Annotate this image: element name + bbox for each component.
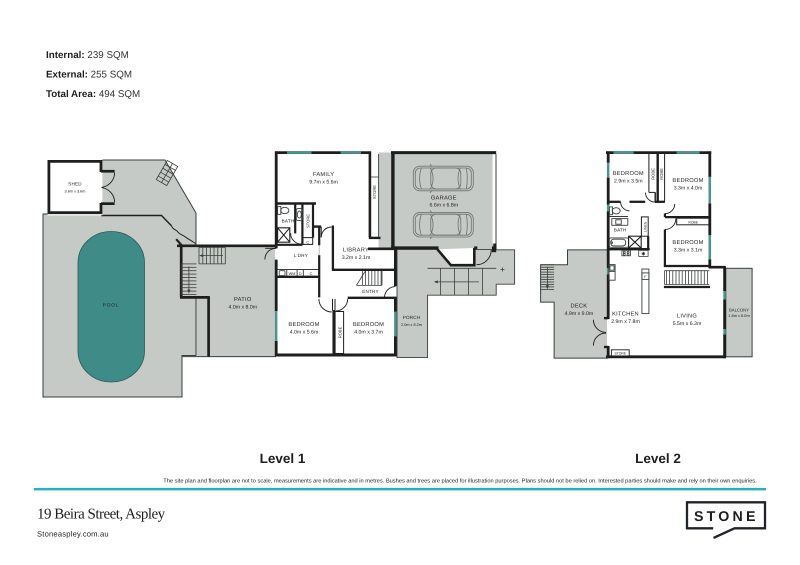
svg-text:1.8m x 8.0m: 1.8m x 8.0m xyxy=(728,313,749,318)
svg-text:6.6m x 6.8m: 6.6m x 6.8m xyxy=(430,203,459,209)
svg-text:LINEN: LINEN xyxy=(643,221,647,232)
svg-text:ROBE: ROBE xyxy=(651,168,656,180)
svg-text:Level 2: Level 2 xyxy=(635,451,681,466)
svg-text:PORCH: PORCH xyxy=(403,315,421,320)
svg-text:LIVING: LIVING xyxy=(677,314,697,320)
svg-text:Stoneaspley.com.au: Stoneaspley.com.au xyxy=(37,530,109,539)
svg-text:BATH: BATH xyxy=(614,228,627,233)
svg-text:4.0m x 5.6m: 4.0m x 5.6m xyxy=(290,330,319,336)
svg-text:PATIO: PATIO xyxy=(234,297,252,303)
svg-text:DECK: DECK xyxy=(570,304,587,310)
svg-text:L’DRY: L’DRY xyxy=(294,253,308,258)
svg-text:9.7m x 5.6m: 9.7m x 5.6m xyxy=(309,179,338,185)
svg-text:2.0m x 8.2m: 2.0m x 8.2m xyxy=(401,323,422,327)
svg-text:The site plan and floorplan ar: The site plan and floorplan are not to s… xyxy=(163,478,757,485)
svg-text:ROBE: ROBE xyxy=(688,220,698,224)
svg-text:Total Area: 494 SQM: Total Area: 494 SQM xyxy=(46,89,140,100)
svg-text:KITCHEN: KITCHEN xyxy=(612,312,639,318)
svg-text:ENTRY: ENTRY xyxy=(362,289,379,294)
svg-text:4.0m x 3.7m: 4.0m x 3.7m xyxy=(354,330,383,336)
svg-text:Internal: 239 SQM: Internal: 239 SQM xyxy=(46,50,129,61)
svg-text:WM: WM xyxy=(289,272,296,276)
svg-text:BEDROOM: BEDROOM xyxy=(672,240,703,246)
svg-text:SHED: SHED xyxy=(68,182,82,187)
svg-text:BATH: BATH xyxy=(282,219,295,224)
svg-text:4.0m x 8.0m: 4.0m x 8.0m xyxy=(229,305,258,311)
svg-text:D: D xyxy=(299,272,302,276)
svg-text:2.9m x 7.8m: 2.9m x 7.8m xyxy=(611,319,640,325)
svg-text:POOL: POOL xyxy=(103,303,120,309)
svg-text:External: 255 SQM: External: 255 SQM xyxy=(46,70,132,81)
svg-text:✱: ✱ xyxy=(641,251,645,257)
svg-text:Level 1: Level 1 xyxy=(260,451,306,466)
svg-text:C: C xyxy=(310,272,313,276)
svg-text:3.6m x 3.6m: 3.6m x 3.6m xyxy=(65,190,86,194)
svg-text:BALCONY: BALCONY xyxy=(729,308,749,313)
svg-text:STORE: STORE xyxy=(614,352,626,356)
svg-text:3.2m x 2.1m: 3.2m x 2.1m xyxy=(342,255,371,261)
svg-text:BEDROOM: BEDROOM xyxy=(672,178,703,184)
svg-text:4.9m x 9.0m: 4.9m x 9.0m xyxy=(565,311,594,317)
svg-text:STORE: STORE xyxy=(372,185,377,199)
svg-text:ROBE: ROBE xyxy=(337,326,342,338)
svg-text:STONE: STONE xyxy=(694,509,759,525)
svg-text:C: C xyxy=(306,240,309,244)
svg-text:3.3m x 4.0m: 3.3m x 4.0m xyxy=(674,186,703,192)
svg-text:19 Beira Street, Aspley: 19 Beira Street, Aspley xyxy=(37,507,166,523)
svg-text:GARAGE: GARAGE xyxy=(431,196,457,202)
svg-text:BEDROOM: BEDROOM xyxy=(613,171,644,177)
svg-text:2.9m x 3.5m: 2.9m x 3.5m xyxy=(614,179,643,185)
svg-text:ROBE: ROBE xyxy=(659,168,664,180)
svg-text:FAMILY: FAMILY xyxy=(313,172,334,178)
svg-text:BEDROOM: BEDROOM xyxy=(288,322,319,328)
svg-text:F: F xyxy=(644,275,646,279)
svg-text:3.3m x 3.1m: 3.3m x 3.1m xyxy=(674,248,703,254)
svg-text:LIBRARY: LIBRARY xyxy=(343,248,369,254)
svg-text:BEDROOM: BEDROOM xyxy=(353,322,384,328)
svg-text:5.5m x 6.3m: 5.5m x 6.3m xyxy=(673,321,702,327)
svg-text:STORE: STORE xyxy=(306,214,311,228)
